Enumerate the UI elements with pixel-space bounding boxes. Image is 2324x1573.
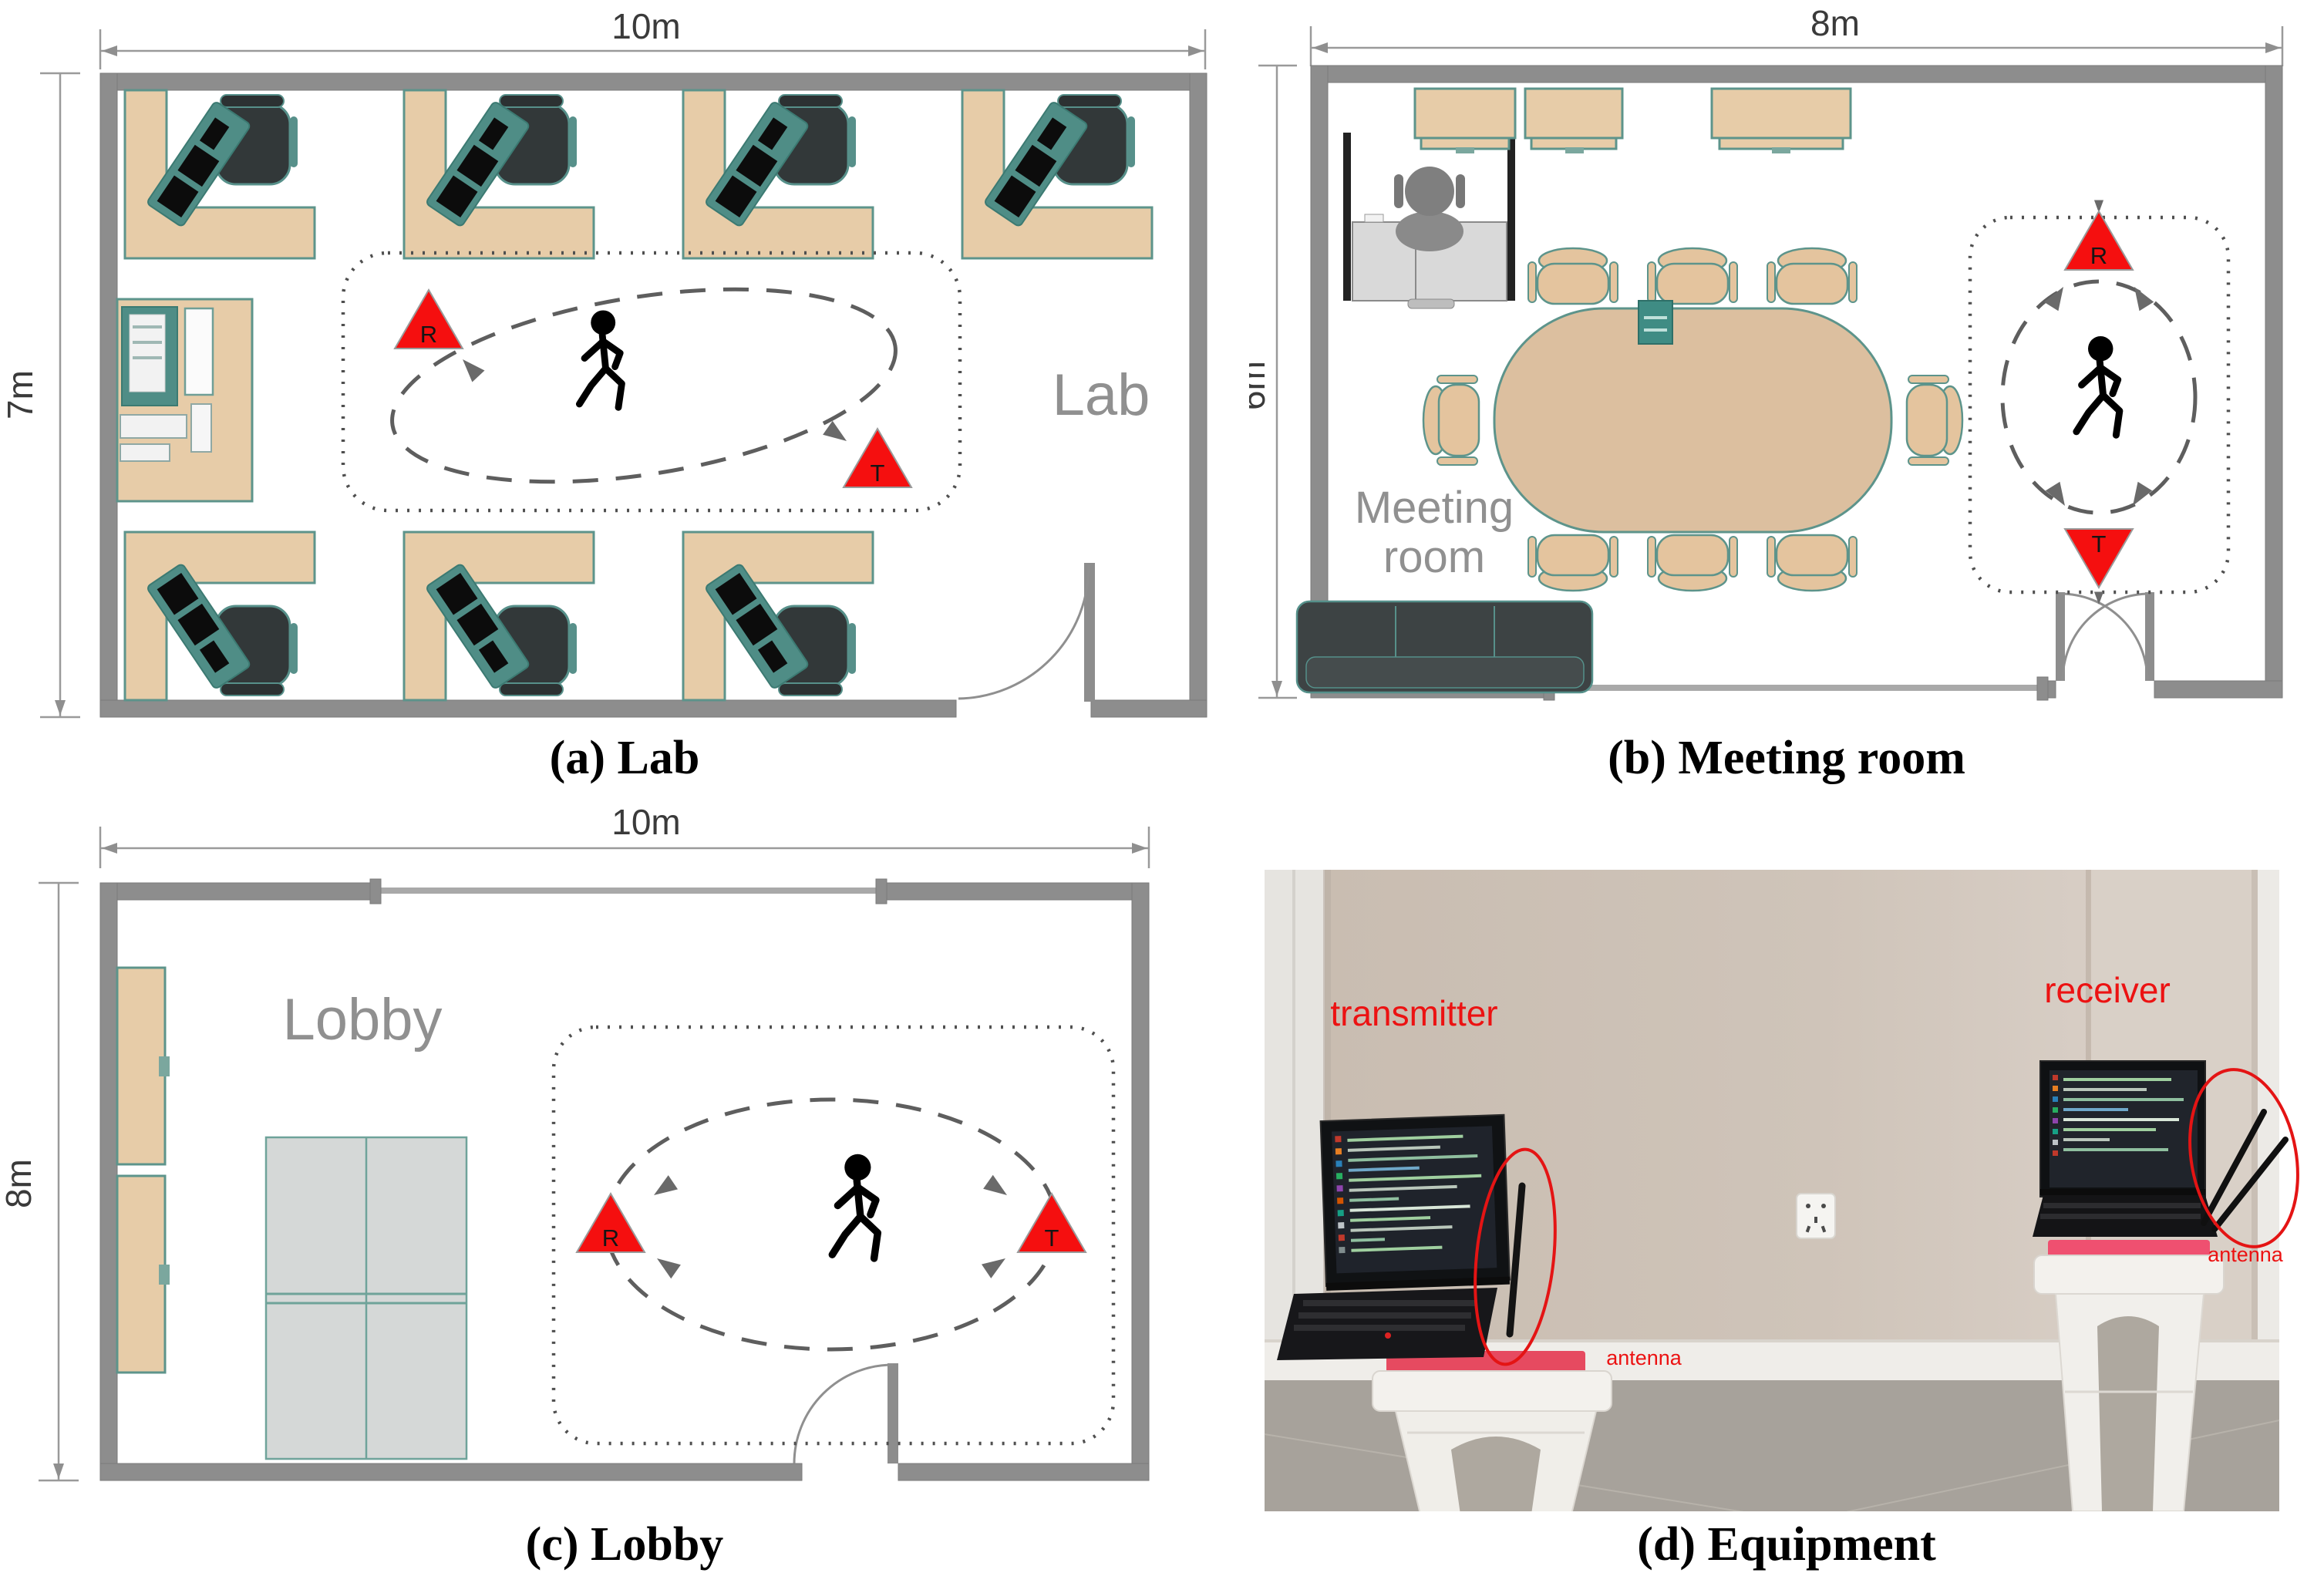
- lab-room-label: Lab: [1053, 362, 1150, 428]
- cabinet: [1712, 89, 1851, 153]
- chair: [1648, 248, 1737, 304]
- caption-meeting: (b) Meeting room: [1249, 731, 2324, 786]
- walking-path: [606, 1100, 1056, 1349]
- workstation: [404, 90, 594, 258]
- meeting-receiver-label: R: [2090, 242, 2107, 269]
- chair: [1648, 535, 1737, 591]
- chair: [1907, 376, 1962, 465]
- chair: [1767, 248, 1857, 304]
- receiver-label: receiver: [2044, 970, 2171, 1010]
- cabinet: [117, 1176, 170, 1373]
- chair: [1423, 376, 1479, 465]
- figure-experiment-scenarios: 10m 7m: [0, 0, 2324, 1573]
- lab-floorplan: 10m 7m: [0, 0, 1249, 725]
- meeting-corner-desk: [1343, 133, 1515, 308]
- door-icon: [958, 563, 1095, 702]
- projector-device: [1639, 301, 1672, 344]
- workstation: [683, 90, 873, 258]
- lobby-floorplan: 10m 8m Lobby: [0, 794, 1249, 1511]
- lab-transmitter-label: T: [871, 460, 885, 487]
- meeting-room-floorplan: 8m 6m: [1249, 0, 2324, 725]
- double-door-icon: [2056, 592, 2154, 681]
- workstation: [125, 532, 315, 700]
- meeting-cabinets: [1415, 89, 1851, 153]
- caption-lobby: (c) Lobby: [0, 1517, 1249, 1572]
- chair: [1528, 248, 1618, 304]
- lobby-receiver-label: R: [602, 1224, 619, 1251]
- walking-person-icon: [579, 310, 621, 407]
- power-outlet: [1797, 1194, 1835, 1238]
- workstation: [404, 532, 594, 700]
- equipment-photo: transmitter antenna receiver anten: [1249, 794, 2324, 1511]
- meeting-room-label-line2: room: [1383, 532, 1485, 582]
- cabinet: [1525, 89, 1622, 153]
- lobby-dimensions: 10m 8m: [0, 802, 1149, 1480]
- transmitter-label: transmitter: [1330, 993, 1497, 1033]
- lab-workstations: [125, 90, 1152, 700]
- walking-person-icon: [832, 1154, 877, 1258]
- sofa: [1297, 601, 1592, 692]
- meeting-height-label: 6m: [1249, 361, 1272, 410]
- meeting-transmitter-label: T: [2092, 531, 2107, 557]
- walking-person-icon: [2076, 336, 2120, 435]
- lab-receiver-label: R: [420, 321, 437, 348]
- antenna-label-left: antenna: [1606, 1346, 1682, 1369]
- conference-table: [1494, 308, 1891, 532]
- lab-width-label: 10m: [611, 6, 680, 46]
- cabinet: [1415, 89, 1515, 153]
- lobby-table: [266, 1137, 466, 1459]
- walking-path: [379, 258, 909, 513]
- lobby-height-label: 8m: [0, 1159, 39, 1208]
- lobby-width-label: 10m: [611, 802, 680, 842]
- meeting-room-label-line1: Meeting: [1355, 483, 1514, 533]
- caption-lab: (a) Lab: [0, 731, 1249, 786]
- caption-equipment: (d) Equipment: [1249, 1517, 2324, 1572]
- chair: [1528, 535, 1618, 591]
- lobby-transmitter-label: T: [1045, 1224, 1059, 1251]
- antenna-label-right: antenna: [2208, 1243, 2284, 1266]
- lab-height-label: 7m: [0, 370, 40, 419]
- door-icon: [794, 1363, 898, 1464]
- lobby-cabinets: [117, 968, 170, 1373]
- cabinet: [117, 968, 170, 1164]
- lab-side-desk: [117, 299, 252, 501]
- lobby-room-label: Lobby: [282, 987, 442, 1053]
- meeting-width-label: 8m: [1810, 3, 1860, 43]
- workstation: [683, 532, 873, 700]
- workstation: [125, 90, 315, 258]
- workstation: [962, 90, 1152, 258]
- chair: [1767, 535, 1857, 591]
